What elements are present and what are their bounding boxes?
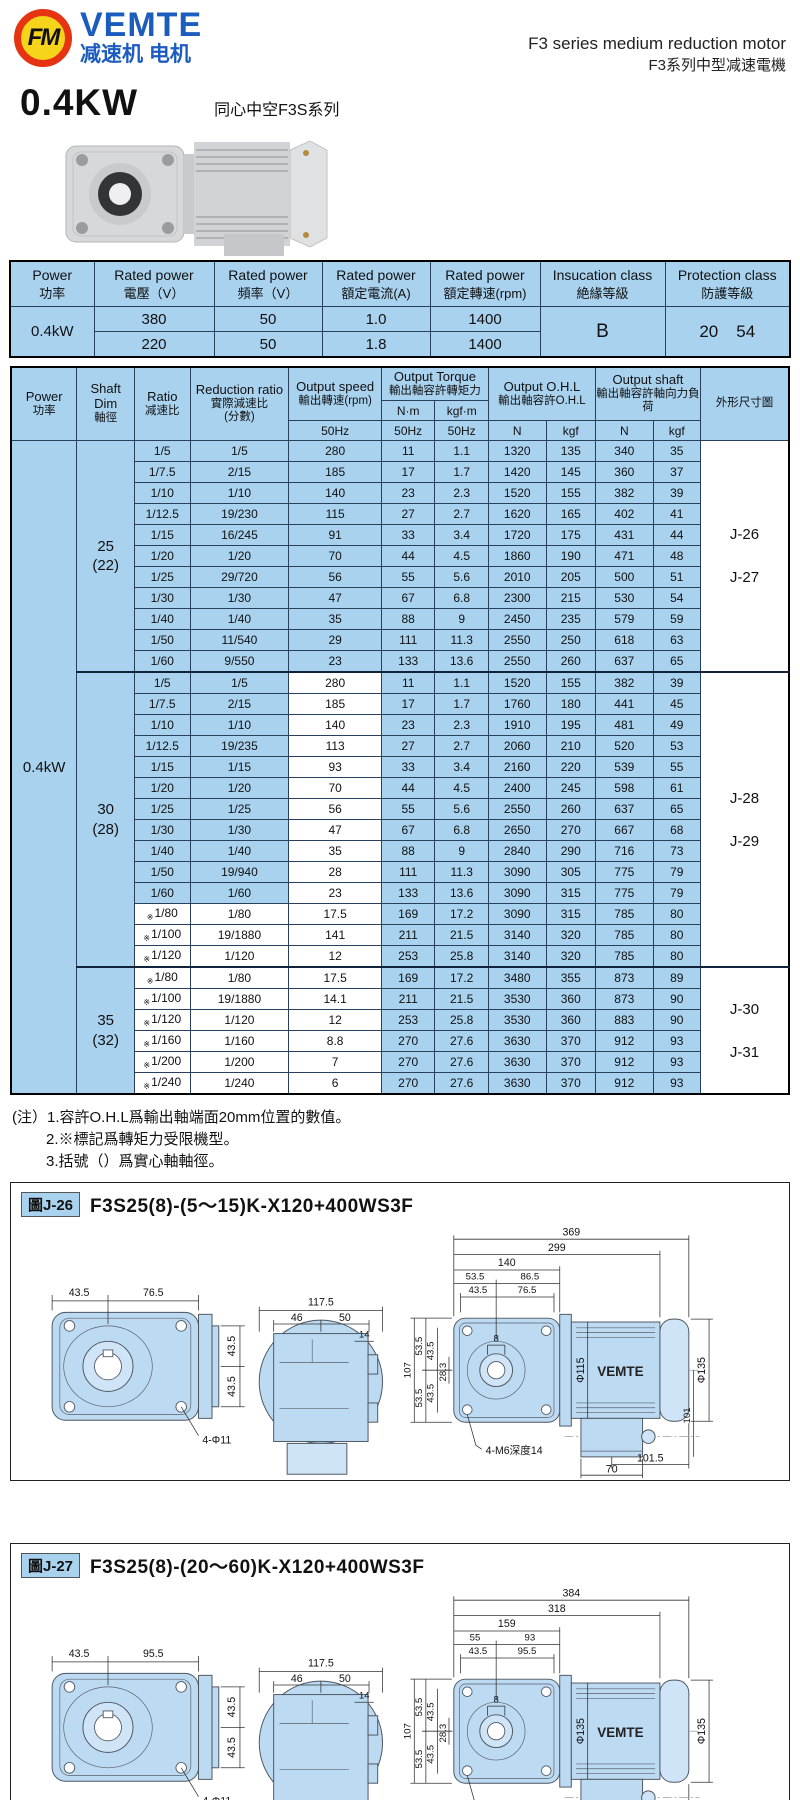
svg-text:8: 8	[493, 1695, 498, 1706]
ohl-n-cell: 3090	[488, 883, 546, 904]
reduction-ratio-cell: 19/230	[190, 504, 289, 525]
dimension-drawing-j26: 43.5 76.5 43.5 43.5 4-Φ11	[11, 1218, 781, 1480]
torque-kgfm-cell: 21.5	[435, 925, 489, 946]
shaft-load-kgf-cell: 48	[653, 546, 700, 567]
col-output-shaft: Output shaft輸出軸容許軸向力負荷	[595, 367, 700, 421]
output-speed-cell: 185	[289, 462, 382, 483]
torque-kgfm-cell: 6.8	[435, 820, 489, 841]
reduction-ratio-cell: 1/20	[190, 546, 289, 567]
datasheet-page: FM VEMTE 减速机 电机 F3 series medium reducti…	[0, 0, 800, 1800]
ohl-kgf-cell: 195	[546, 715, 595, 736]
shaft-load-kgf-cell: 55	[653, 757, 700, 778]
perf-header-row-1: Power功率 Shaft Dim軸徑 Ratio减速比 Reduction r…	[11, 367, 789, 401]
dim-ref-label: J-28	[701, 790, 788, 807]
ratio-cell: 1/40	[134, 841, 190, 862]
ratio-cell: ※1/80	[134, 967, 190, 989]
svg-text:76.5: 76.5	[143, 1287, 164, 1299]
rating-row-380v: 0.4kW 380 50 1.0 1400 B 2054	[10, 307, 790, 332]
shaft-load-n-cell: 912	[595, 1031, 653, 1052]
ohl-kgf-cell: 355	[546, 967, 595, 989]
col-output-speed: Output speed輸出轉速(rpm)	[289, 367, 382, 421]
side-view: Φ135 VEMTE 384 318 159 55 93 43.5 95.5 1…	[402, 1588, 712, 1800]
svg-text:43.5: 43.5	[69, 1287, 90, 1299]
ohl-n-cell: 2060	[488, 736, 546, 757]
shaft-load-kgf-cell: 93	[653, 1073, 700, 1095]
shaft-load-kgf-cell: 41	[653, 504, 700, 525]
power-value: 0.4kW	[10, 307, 94, 358]
svg-text:53.5: 53.5	[414, 1337, 425, 1356]
svg-text:28.3: 28.3	[438, 1724, 449, 1743]
ohl-n-cell: 1420	[488, 462, 546, 483]
ratio-cell: ※1/100	[134, 989, 190, 1010]
torque-nm-cell: 111	[381, 862, 435, 883]
reduction-ratio-cell: 2/15	[190, 462, 289, 483]
power-line: 0.4KW 同心中空F3S系列	[0, 80, 800, 122]
torque-nm-cell: 23	[381, 715, 435, 736]
shaft-load-n-cell: 785	[595, 925, 653, 946]
svg-text:4-M6深度14: 4-M6深度14	[486, 1444, 543, 1457]
svg-text:46: 46	[291, 1673, 303, 1685]
shaft-load-n-cell: 618	[595, 630, 653, 651]
reduction-ratio-cell: 19/1880	[190, 989, 289, 1010]
output-speed-cell: 7	[289, 1052, 382, 1073]
reduction-ratio-cell: 1/80	[190, 904, 289, 925]
torque-limited-mark: ※	[143, 1061, 150, 1070]
ohl-kgf-cell: 320	[546, 946, 595, 968]
svg-text:369: 369	[562, 1227, 580, 1239]
ratio-cell: 1/5	[134, 441, 190, 462]
power-rating: 0.4KW	[20, 82, 138, 124]
torque-nm-cell: 17	[381, 694, 435, 715]
ratio-cell: ※1/160	[134, 1031, 190, 1052]
ohl-kgf-cell: 260	[546, 651, 595, 673]
diagram-model-name: F3S25(8)-(5～15)K-X120+400WS3F	[90, 1191, 413, 1218]
output-speed-cell: 70	[289, 546, 382, 567]
dim-ref-label: J-31	[701, 1044, 788, 1061]
reduction-ratio-cell: 1/120	[190, 1010, 289, 1031]
ratio-cell: 1/20	[134, 546, 190, 567]
shaft-load-kgf-cell: 93	[653, 1031, 700, 1052]
ohl-kgf-cell: 180	[546, 694, 595, 715]
svg-text:43.5: 43.5	[426, 1703, 437, 1722]
ohl-n-cell: 3630	[488, 1073, 546, 1095]
shaft-load-kgf-cell: 35	[653, 441, 700, 462]
svg-text:4-Φ11: 4-Φ11	[202, 1435, 231, 1447]
diagram-box-j27: 圖J-27 F3S25(8)-(20～60)K-X120+400WS3F 43.…	[10, 1543, 790, 1800]
ratio-cell: 1/12.5	[134, 736, 190, 757]
ratio-cell: 1/12.5	[134, 504, 190, 525]
shaft-load-kgf-cell: 39	[653, 483, 700, 504]
svg-text:117.5: 117.5	[308, 1297, 334, 1309]
ohl-n-cell: 2010	[488, 567, 546, 588]
performance-table-body: 0.4kW25(22)1/51/5280111.1132013534035J-2…	[11, 441, 789, 1095]
ratio-cell: 1/15	[134, 525, 190, 546]
col-shaft-dim: Shaft Dim軸徑	[77, 367, 135, 441]
svg-text:46: 46	[291, 1312, 303, 1324]
dim-ref-label: J-26	[701, 526, 788, 543]
svg-text:76.5: 76.5	[518, 1285, 537, 1296]
ohl-n-cell: 2160	[488, 757, 546, 778]
reduction-ratio-cell: 19/1880	[190, 925, 289, 946]
ratio-row: 35(32)※1/801/8017.516917.2348035587389J-…	[11, 967, 789, 989]
col-power: Power功率	[10, 261, 94, 307]
svg-text:318: 318	[548, 1603, 566, 1615]
frequency-value: 50	[214, 307, 322, 332]
torque-nm-cell: 270	[381, 1052, 435, 1073]
reduction-ratio-cell: 1/10	[190, 715, 289, 736]
ratio-cell: ※1/120	[134, 1010, 190, 1031]
output-speed-cell: 280	[289, 672, 382, 694]
torque-limited-mark: ※	[147, 977, 154, 986]
torque-kgfm-cell: 5.6	[435, 567, 489, 588]
col-power: Power功率	[11, 367, 77, 441]
svg-text:50: 50	[339, 1312, 351, 1324]
output-speed-cell: 140	[289, 483, 382, 504]
ratio-cell: 1/20	[134, 778, 190, 799]
svg-text:VEMTE: VEMTE	[597, 1725, 643, 1740]
torque-kgfm-cell: 17.2	[435, 904, 489, 925]
svg-text:93: 93	[525, 1633, 536, 1644]
protection-value: 2054	[665, 307, 790, 358]
svg-text:Φ135: Φ135	[575, 1718, 587, 1744]
torque-nm-cell: 27	[381, 504, 435, 525]
torque-nm-cell: 133	[381, 883, 435, 904]
shaft-dim-cell: 25(22)	[77, 441, 135, 673]
ohl-kgf-cell: 220	[546, 757, 595, 778]
output-speed-cell: 47	[289, 820, 382, 841]
ohl-n-cell: 2450	[488, 609, 546, 630]
svg-text:Φ135: Φ135	[696, 1357, 708, 1383]
output-speed-cell: 47	[289, 588, 382, 609]
ohl-kgf-cell: 290	[546, 841, 595, 862]
shaft-load-kgf-cell: 37	[653, 462, 700, 483]
torque-limited-mark: ※	[143, 1019, 150, 1028]
brand-logo-icon: FM	[14, 9, 72, 67]
shaft-load-kgf-cell: 39	[653, 672, 700, 694]
svg-text:8: 8	[493, 1334, 498, 1345]
power-cell: 0.4kW	[11, 441, 77, 1095]
front-view: 43.5 95.5 43.5 43.5 4-Φ11	[52, 1648, 245, 1800]
svg-text:43.5: 43.5	[426, 1384, 437, 1403]
output-speed-cell: 6	[289, 1073, 382, 1095]
ohl-kgf-cell: 315	[546, 883, 595, 904]
shaft-load-n-cell: 471	[595, 546, 653, 567]
svg-text:53.5: 53.5	[414, 1750, 425, 1769]
insulation-value: B	[540, 307, 665, 358]
svg-text:50: 50	[339, 1673, 351, 1685]
note-line-2: 2.※標記爲轉矩力受限機型。	[46, 1129, 800, 1151]
svg-text:43.5: 43.5	[226, 1336, 238, 1357]
shaft-load-n-cell: 785	[595, 946, 653, 968]
hz-speed: 50Hz	[289, 421, 382, 441]
ohl-n-cell: 3630	[488, 1052, 546, 1073]
ohl-n-cell: 1910	[488, 715, 546, 736]
col-protection: Protection class防護等級	[665, 261, 790, 307]
reduction-ratio-cell: 9/550	[190, 651, 289, 673]
ratio-cell: ※1/120	[134, 946, 190, 968]
series-title-zh: F3系列中型减速電機	[528, 54, 786, 75]
shaft-load-n-cell: 530	[595, 588, 653, 609]
svg-text:43.5: 43.5	[426, 1342, 437, 1361]
current-value: 1.8	[322, 332, 430, 358]
output-speed-cell: 93	[289, 757, 382, 778]
ohl-n-cell: 2550	[488, 630, 546, 651]
shaft-load-kgf-cell: 53	[653, 736, 700, 757]
col-reduction: Reduction ratio實際減速比(分數)	[190, 367, 289, 441]
shaft-load-kgf-cell: 51	[653, 567, 700, 588]
svg-text:101.5: 101.5	[637, 1453, 664, 1465]
dim-ref-label: J-30	[701, 1001, 788, 1018]
reduction-ratio-cell: 1/5	[190, 672, 289, 694]
shaft-n: N	[595, 421, 653, 441]
svg-text:43.5: 43.5	[226, 1376, 238, 1397]
shaft-load-kgf-cell: 45	[653, 694, 700, 715]
ohl-kgf-cell: 235	[546, 609, 595, 630]
torque-nm-cell: 211	[381, 925, 435, 946]
svg-text:140: 140	[498, 1257, 516, 1269]
ohl-n-cell: 1860	[488, 546, 546, 567]
torque-kgfm-cell: 3.4	[435, 525, 489, 546]
ohl-kgf-cell: 360	[546, 989, 595, 1010]
shaft-kgf: kgf	[653, 421, 700, 441]
shaft-load-n-cell: 579	[595, 609, 653, 630]
ratio-cell: 1/25	[134, 567, 190, 588]
col-output-torque: Output Torque輸出軸容許轉矩力	[381, 367, 488, 401]
col-speed: Rated power額定轉速(rpm)	[430, 261, 540, 307]
torque-kgfm-cell: 1.7	[435, 462, 489, 483]
ratio-cell: 1/60	[134, 651, 190, 673]
output-speed-cell: 56	[289, 567, 382, 588]
shaft-load-n-cell: 382	[595, 672, 653, 694]
ratio-cell: 1/15	[134, 757, 190, 778]
output-speed-cell: 12	[289, 1010, 382, 1031]
page-header: FM VEMTE 减速机 电机 F3 series medium reducti…	[0, 0, 800, 80]
svg-text:43.5: 43.5	[469, 1285, 488, 1296]
reduction-ratio-cell: 1/30	[190, 820, 289, 841]
torque-kgfm-cell: 11.3	[435, 862, 489, 883]
torque-nm-cell: 67	[381, 588, 435, 609]
torque-nm-cell: 11	[381, 441, 435, 462]
voltage-value: 220	[94, 332, 214, 358]
reduction-ratio-cell: 2/15	[190, 694, 289, 715]
ohl-kgf-cell: 205	[546, 567, 595, 588]
shaft-load-kgf-cell: 80	[653, 946, 700, 968]
ohl-kgf-cell: 175	[546, 525, 595, 546]
torque-nm-cell: 33	[381, 525, 435, 546]
reduction-ratio-cell: 1/240	[190, 1073, 289, 1095]
series-name: 同心中空F3S系列	[214, 96, 339, 120]
col-voltage: Rated power電壓（V）	[94, 261, 214, 307]
shaft-load-kgf-cell: 65	[653, 651, 700, 673]
front-view: 43.5 76.5 43.5 43.5 4-Φ11	[52, 1287, 245, 1446]
torque-kgfm-cell: 2.7	[435, 736, 489, 757]
ohl-n-cell: 2840	[488, 841, 546, 862]
ohl-kgf-cell: 320	[546, 925, 595, 946]
shaft-load-n-cell: 775	[595, 862, 653, 883]
shaft-load-kgf-cell: 93	[653, 1052, 700, 1073]
shaft-load-kgf-cell: 79	[653, 862, 700, 883]
svg-text:55: 55	[470, 1633, 481, 1644]
footnotes: (注）1.容許O.H.L爲輸出軸端面20mm位置的數值。 2.※標記爲轉矩力受限…	[12, 1107, 800, 1172]
series-title-en: F3 series medium reduction motor	[528, 34, 786, 54]
torque-kgfm-cell: 4.5	[435, 778, 489, 799]
torque-kgfm-cell: 13.6	[435, 651, 489, 673]
svg-text:4-Φ11: 4-Φ11	[202, 1796, 231, 1800]
torque-kgfm-cell: 3.4	[435, 757, 489, 778]
torque-kgfm-cell: 27.6	[435, 1073, 489, 1095]
svg-text:101: 101	[682, 1408, 693, 1424]
reduction-ratio-cell: 1/25	[190, 799, 289, 820]
ohl-kgf-cell: 370	[546, 1073, 595, 1095]
torque-nm-cell: 169	[381, 967, 435, 989]
reduction-ratio-cell: 19/940	[190, 862, 289, 883]
brand-subtitle: 减速机 电机	[80, 42, 202, 67]
ratio-cell: 1/25	[134, 799, 190, 820]
ohl-n-cell: 1520	[488, 672, 546, 694]
shaft-load-kgf-cell: 79	[653, 883, 700, 904]
ohl-kgf-cell: 360	[546, 1010, 595, 1031]
dim-ref-cell: J-30J-31	[700, 967, 789, 1094]
ohl-kgf-cell: 305	[546, 862, 595, 883]
output-speed-cell: 280	[289, 441, 382, 462]
reduction-ratio-cell: 1/20	[190, 778, 289, 799]
torque-kgfm-cell: 6.8	[435, 588, 489, 609]
reduction-ratio-cell: 1/40	[190, 841, 289, 862]
output-speed-cell: 29	[289, 630, 382, 651]
ratio-cell: 1/5	[134, 672, 190, 694]
hz-nm: 50Hz	[381, 421, 435, 441]
torque-nm-cell: 23	[381, 483, 435, 504]
svg-text:VEMTE: VEMTE	[597, 1364, 643, 1379]
ratio-cell: 1/50	[134, 630, 190, 651]
svg-text:43.5: 43.5	[226, 1697, 238, 1718]
col-ohl: Output O.H.L輸出軸容許O.H.L	[488, 367, 595, 421]
ohl-kgf-cell: 155	[546, 483, 595, 504]
shaft-load-n-cell: 912	[595, 1052, 653, 1073]
shaft-load-n-cell: 520	[595, 736, 653, 757]
ohl-n-cell: 2300	[488, 588, 546, 609]
torque-kgfm-cell: 11.3	[435, 630, 489, 651]
svg-text:107: 107	[402, 1362, 413, 1378]
reduction-ratio-cell: 11/540	[190, 630, 289, 651]
shaft-load-kgf-cell: 59	[653, 609, 700, 630]
ohl-kgf-cell: 165	[546, 504, 595, 525]
torque-nm-cell: 44	[381, 546, 435, 567]
ratio-cell: 1/30	[134, 820, 190, 841]
ratio-cell: ※1/240	[134, 1073, 190, 1095]
output-speed-cell: 56	[289, 799, 382, 820]
svg-text:107: 107	[402, 1723, 413, 1739]
torque-nm-cell: 17	[381, 462, 435, 483]
torque-kgfm-cell: 2.7	[435, 504, 489, 525]
ohl-n-cell: 3140	[488, 946, 546, 968]
performance-table: Power功率 Shaft Dim軸徑 Ratio减速比 Reduction r…	[10, 366, 790, 1095]
shaft-load-n-cell: 883	[595, 1010, 653, 1031]
ohl-n-cell: 3480	[488, 967, 546, 989]
ohl-kgf-cell: 370	[546, 1052, 595, 1073]
ohl-n-cell: 2550	[488, 799, 546, 820]
ohl-kgf-cell: 250	[546, 630, 595, 651]
shaft-dim-cell: 35(32)	[77, 967, 135, 1094]
output-speed-cell: 113	[289, 736, 382, 757]
hz-kgfm: 50Hz	[435, 421, 489, 441]
diagram-title-j26: 圖J-26 F3S25(8)-(5～15)K-X120+400WS3F	[11, 1183, 789, 1218]
brand-block: FM VEMTE 减速机 电机	[14, 8, 202, 67]
shaft-load-n-cell: 481	[595, 715, 653, 736]
torque-nm-cell: 211	[381, 989, 435, 1010]
ratio-cell: 1/50	[134, 862, 190, 883]
col-insulation: Insucation class絶緣等級	[540, 261, 665, 307]
torque-nm-cell: 67	[381, 820, 435, 841]
shaft-load-n-cell: 716	[595, 841, 653, 862]
svg-text:117.5: 117.5	[308, 1658, 334, 1670]
torque-nm-cell: 88	[381, 841, 435, 862]
shaft-load-kgf-cell: 65	[653, 799, 700, 820]
torque-kgfm-cell: 1.1	[435, 672, 489, 694]
torque-kgfm-cell: 1.7	[435, 694, 489, 715]
dim-ref-label: J-27	[701, 569, 788, 586]
shaft-load-n-cell: 500	[595, 567, 653, 588]
speed-value: 1400	[430, 332, 540, 358]
svg-text:43.5: 43.5	[69, 1648, 90, 1660]
output-speed-cell: 23	[289, 651, 382, 673]
shaft-load-n-cell: 340	[595, 441, 653, 462]
torque-kgfm-cell: 17.2	[435, 967, 489, 989]
svg-text:Φ135: Φ135	[696, 1718, 708, 1744]
output-speed-cell: 141	[289, 925, 382, 946]
ohl-kgf-cell: 270	[546, 820, 595, 841]
shaft-load-kgf-cell: 90	[653, 989, 700, 1010]
note-line-3: 3.括號（）爲實心軸軸徑。	[46, 1151, 800, 1173]
shaft-load-n-cell: 912	[595, 1073, 653, 1095]
ohl-kgf-cell: 315	[546, 904, 595, 925]
torque-kgfm-cell: 2.3	[435, 715, 489, 736]
torque-limited-mark: ※	[143, 998, 150, 1007]
torque-nm-cell: 111	[381, 630, 435, 651]
ratio-cell: ※1/80	[134, 904, 190, 925]
torque-kgfm-cell: 4.5	[435, 546, 489, 567]
dimension-drawing-j27: 43.5 95.5 43.5 43.5 4-Φ11 117	[11, 1579, 781, 1800]
diagram-title-j27: 圖J-27 F3S25(8)-(20～60)K-X120+400WS3F	[11, 1544, 789, 1579]
ohl-n-cell: 3530	[488, 1010, 546, 1031]
output-speed-cell: 115	[289, 504, 382, 525]
shaft-load-n-cell: 402	[595, 504, 653, 525]
torque-limited-mark: ※	[143, 1082, 150, 1091]
ohl-kgf-cell: 215	[546, 588, 595, 609]
torque-nm-cell: 33	[381, 757, 435, 778]
reduction-ratio-cell: 1/160	[190, 1031, 289, 1052]
svg-text:53.5: 53.5	[466, 1272, 485, 1283]
torque-nm-cell: 88	[381, 609, 435, 630]
face-view: 117.5 46 50 14	[259, 1658, 382, 1800]
svg-text:95.5: 95.5	[143, 1648, 164, 1660]
reduction-ratio-cell: 29/720	[190, 567, 289, 588]
svg-text:95.5: 95.5	[518, 1646, 537, 1657]
torque-nm-cell: 27	[381, 736, 435, 757]
gearmotor-photo	[58, 124, 338, 256]
ohl-n-cell: 1320	[488, 441, 546, 462]
diagram-model-name: F3S25(8)-(20～60)K-X120+400WS3F	[90, 1552, 424, 1579]
output-speed-cell: 70	[289, 778, 382, 799]
shaft-load-n-cell: 873	[595, 967, 653, 989]
col-current: Rated power額定電流(A)	[322, 261, 430, 307]
ohl-n-cell: 3530	[488, 989, 546, 1010]
reduction-ratio-cell: 1/10	[190, 483, 289, 504]
output-speed-cell: 23	[289, 883, 382, 904]
shaft-load-kgf-cell: 68	[653, 820, 700, 841]
ohl-kgf: kgf	[546, 421, 595, 441]
reduction-ratio-cell: 1/60	[190, 883, 289, 904]
